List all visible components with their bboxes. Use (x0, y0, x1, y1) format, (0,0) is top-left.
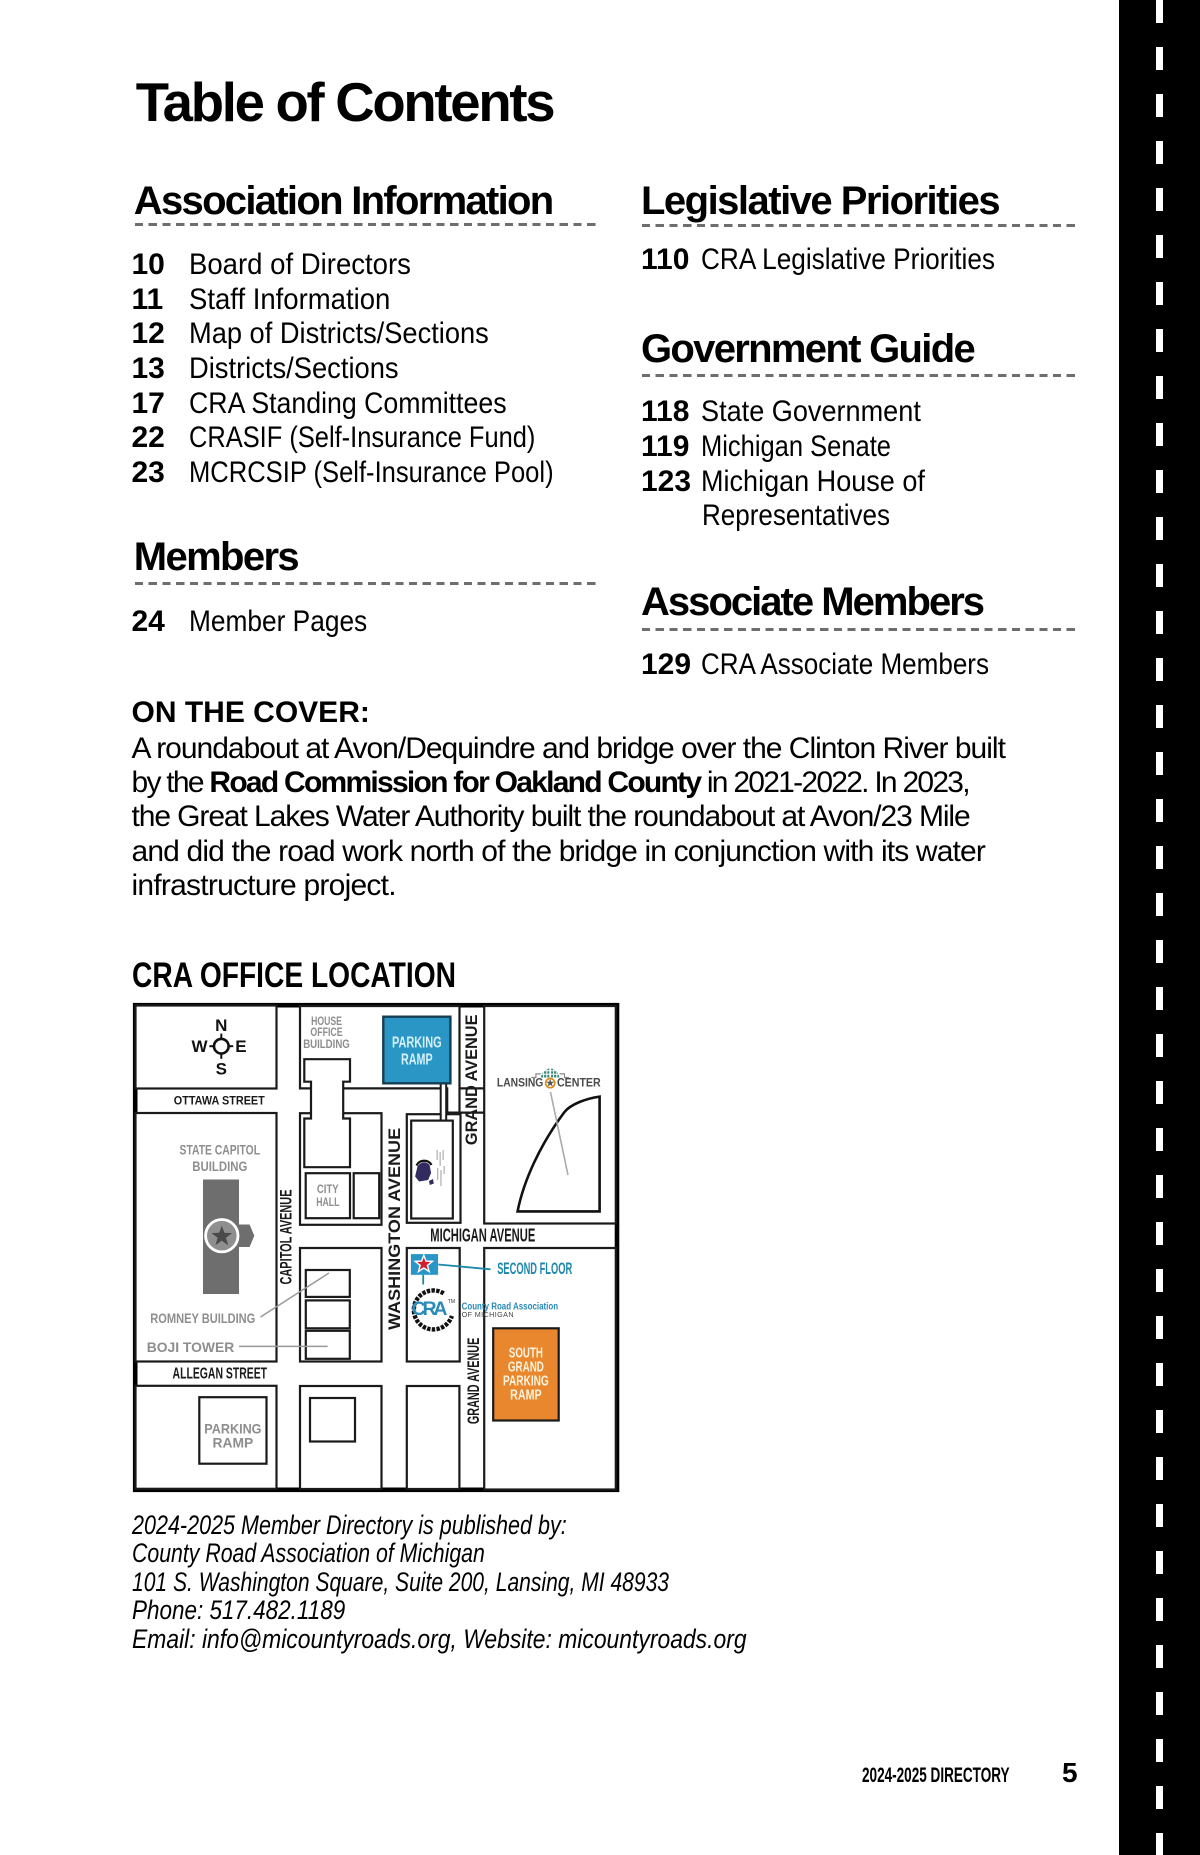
svg-text:GRAND AVENUE: GRAND AVENUE (464, 1338, 483, 1424)
svg-text:CAPITOL AVENUE: CAPITOL AVENUE (278, 1189, 296, 1284)
svg-text:CENTER: CENTER (557, 1077, 601, 1090)
svg-text:ALLEGAN STREET: ALLEGAN STREET (173, 1365, 268, 1382)
svg-text:BOJI TOWER: BOJI TOWER (147, 1339, 235, 1355)
svg-text:BUILDING: BUILDING (192, 1159, 247, 1174)
svg-text:WASHINGTON AVENUE: WASHINGTON AVENUE (385, 1128, 404, 1330)
svg-text:OF MICHIGAN: OF MICHIGAN (462, 1310, 514, 1319)
svg-text:LANSING: LANSING (497, 1077, 543, 1090)
svg-text:PARKING: PARKING (392, 1035, 442, 1052)
svg-text:S: S (216, 1059, 227, 1078)
svg-text:N: N (215, 1016, 227, 1035)
svg-text:CITY: CITY (317, 1182, 339, 1196)
svg-text:BUILDING: BUILDING (303, 1037, 350, 1051)
svg-text:E: E (235, 1037, 246, 1056)
svg-text:TM: TM (448, 1299, 455, 1305)
svg-text:RAMP: RAMP (213, 1434, 254, 1450)
svg-text:W: W (191, 1037, 208, 1056)
svg-text:RAMP: RAMP (510, 1388, 542, 1404)
svg-text:OTTAWA STREET: OTTAWA STREET (174, 1093, 265, 1107)
svg-text:STATE CAPITOL: STATE CAPITOL (180, 1143, 261, 1158)
svg-text:HALL: HALL (316, 1195, 339, 1209)
svg-text:CRA: CRA (412, 1298, 448, 1320)
svg-text:MICHIGAN AVENUE: MICHIGAN AVENUE (430, 1224, 535, 1245)
svg-text:ROMNEY BUILDING: ROMNEY BUILDING (150, 1310, 255, 1326)
svg-text:GRAND AVENUE: GRAND AVENUE (462, 1015, 481, 1146)
svg-text:RAMP: RAMP (401, 1052, 433, 1069)
svg-text:SECOND FLOOR: SECOND FLOOR (497, 1260, 572, 1278)
